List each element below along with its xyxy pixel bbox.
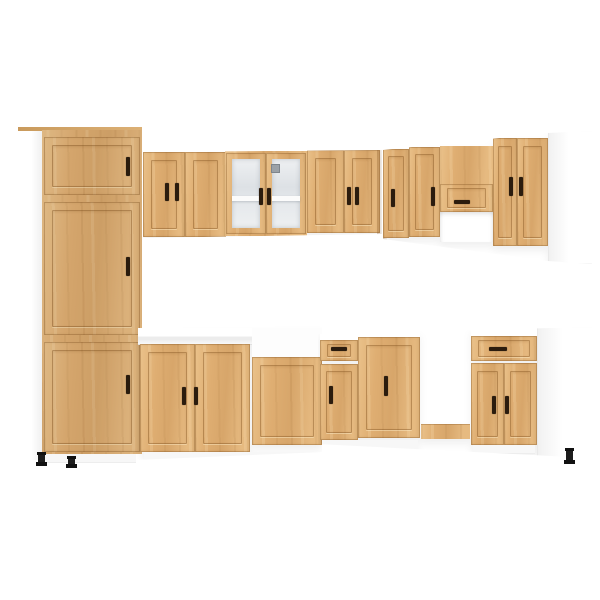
glass-cabinet-handle-left bbox=[259, 188, 263, 205]
cabinet-foot-left-2 bbox=[68, 456, 75, 468]
tall-cabinet-handle-middle bbox=[126, 257, 130, 276]
plinth-right-b bbox=[473, 445, 535, 454]
tall-cabinet-handle-bottom bbox=[126, 375, 130, 394]
corner-base-handle bbox=[329, 386, 333, 404]
flip-up-door bbox=[440, 184, 493, 212]
right-base-handle-right bbox=[505, 396, 509, 414]
glass-cabinet-handle-right bbox=[267, 188, 271, 205]
flip-cabinet-upper-panel bbox=[440, 146, 493, 184]
tall-cabinet-side-panel bbox=[18, 130, 43, 460]
wall-corner-shadow bbox=[377, 150, 382, 236]
cabinet-foot-right bbox=[566, 448, 573, 464]
right-wall-door-2 bbox=[409, 147, 440, 237]
corner-base-door bbox=[320, 364, 358, 440]
base-door-r1-handle bbox=[384, 376, 388, 396]
corner-drawer-handle bbox=[331, 347, 347, 351]
wall-cabinet-1-handle-right bbox=[175, 183, 179, 201]
right-base-handle-left bbox=[492, 396, 496, 414]
wall-cabinets-left-run bbox=[143, 148, 382, 240]
plinth-left bbox=[144, 452, 320, 461]
base-cabinets-left-run bbox=[136, 326, 322, 462]
flip-up-door-handle bbox=[454, 200, 470, 204]
sink-cabinet-handle-right bbox=[194, 387, 198, 405]
base-cabinets-right-run bbox=[318, 326, 592, 464]
worktop-left bbox=[138, 328, 252, 345]
corner-carcass-top bbox=[252, 328, 322, 358]
wall-cabinet-3-handle-left bbox=[347, 187, 351, 205]
tall-cabinet-front bbox=[42, 130, 142, 454]
wall-cabinet-1-handle-left bbox=[165, 183, 169, 201]
glass-door-latch bbox=[271, 164, 280, 173]
right-wall-cabinet-door-left bbox=[493, 138, 517, 246]
glass-shelf-right bbox=[272, 196, 300, 201]
right-wall-handle-2 bbox=[431, 187, 435, 206]
right-drawer-handle bbox=[489, 347, 507, 351]
tall-cabinet-plinth bbox=[44, 454, 136, 463]
plinth-right-a bbox=[322, 440, 418, 451]
tall-cabinet-door-bottom bbox=[44, 342, 140, 452]
sink-cabinet-door-left bbox=[140, 344, 195, 452]
wall-cabinet-3-door-left bbox=[307, 150, 344, 233]
wall-end-panel bbox=[548, 132, 593, 263]
corner-wall-door bbox=[383, 149, 409, 238]
extractor-opening bbox=[440, 212, 493, 242]
appliance-front-panel bbox=[252, 357, 322, 445]
glass-shelf-left bbox=[232, 196, 260, 201]
corner-wall-handle bbox=[391, 189, 395, 207]
glass-pane-left bbox=[232, 159, 260, 228]
appliance-gap-plinth bbox=[421, 424, 470, 439]
sink-cabinet-door-right bbox=[195, 344, 250, 452]
right-wall-handle-right bbox=[519, 177, 523, 196]
base-end-panel bbox=[537, 328, 593, 458]
right-wall-handle-left bbox=[509, 177, 513, 196]
kitchen-cabinet-set-photo: Product photo of an L-shaped kitchen cab… bbox=[0, 0, 600, 600]
sink-cabinet-handle-left bbox=[182, 387, 186, 405]
right-base-door-left bbox=[471, 363, 504, 445]
wall-cabinets-right-run bbox=[383, 130, 592, 266]
cabinet-foot-left-1 bbox=[38, 452, 45, 466]
wall-cabinet-1-door-right bbox=[185, 152, 226, 237]
base-door-r1 bbox=[358, 337, 420, 438]
wall-cabinet-3-handle-right bbox=[355, 187, 359, 205]
tall-cabinet-handle-top bbox=[126, 157, 130, 176]
